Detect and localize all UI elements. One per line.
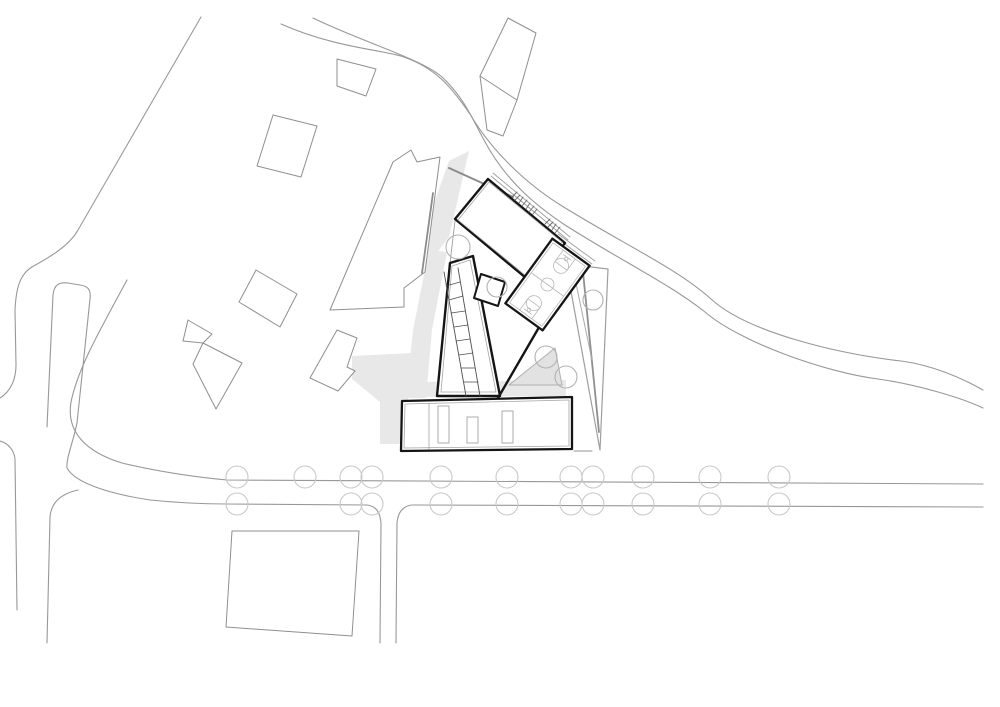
context-building-5b [193,343,242,409]
street-tree [632,493,654,515]
street-tree [430,493,452,515]
street-tree [699,493,721,515]
street-tree-row-north [226,466,790,488]
context-building-6 [310,330,357,391]
context-building-tall [480,18,536,136]
street-tree [699,466,721,488]
street-tree [294,466,316,488]
street-tree [430,466,452,488]
street-tree [226,466,248,488]
street-tree [361,466,383,488]
street-tree [582,493,604,515]
road-left-curb [0,441,17,610]
street-tree [361,493,383,515]
traffic-island [47,283,90,427]
terrain-kite-inner-1 [583,272,599,432]
road-south-branch-east [396,505,412,643]
context-building-4 [239,270,297,327]
road-northwest-boundary [0,17,201,398]
street-tree [768,466,790,488]
skylight-2 [467,417,478,443]
site-plan-drawing [0,0,1000,707]
street-tree [560,466,582,488]
street-south-edge-west [67,423,367,505]
skylight-3 [502,411,513,443]
street-tree [496,493,518,515]
street-tree [560,493,582,515]
context-parcel-south [226,531,359,636]
context-building-2 [257,115,317,177]
street-tree [496,466,518,488]
skylight-1 [438,406,449,443]
site-tree [446,235,470,259]
context-building-1 [337,59,376,96]
road-southwest-branch [47,490,78,643]
street-tree [582,466,604,488]
context-building-5a [183,320,212,343]
street-south-edge-east [412,505,983,507]
street-tree [340,493,362,515]
street-tree-row-south [226,493,790,515]
site-plan-canvas [0,0,1000,707]
street-tree [768,493,790,515]
street-tree [340,466,362,488]
lower-building [401,397,572,451]
road-south-branch-west [367,505,381,643]
street-tree [632,466,654,488]
